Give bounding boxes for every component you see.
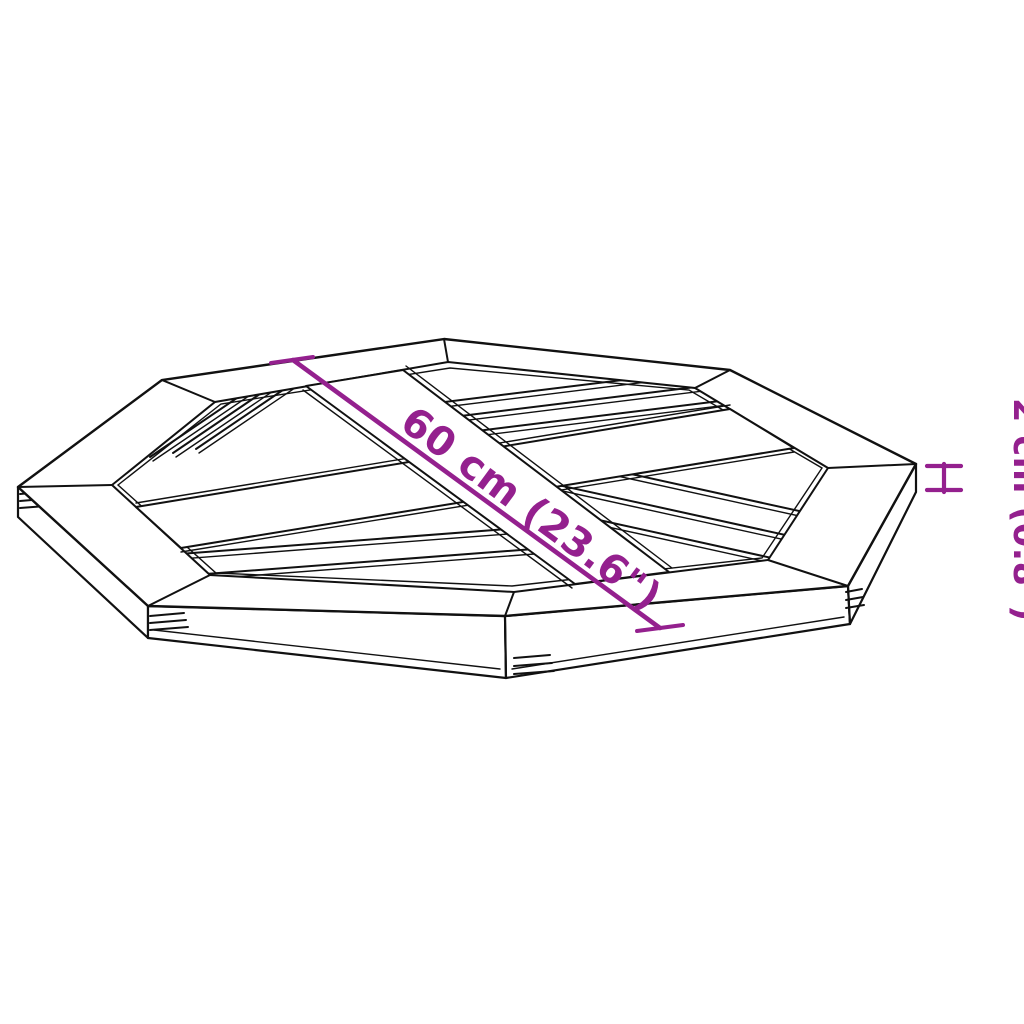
h-bracket-icon bbox=[927, 464, 961, 492]
corner-edge bbox=[505, 616, 506, 678]
table-top-illustration: 60 cm (23.6") 2 cm (0.8") bbox=[0, 0, 1024, 1024]
diagram-canvas: 60 cm (23.6") 2 cm (0.8") bbox=[0, 0, 1024, 1024]
thickness-dimension: 2 cm (0.8") bbox=[927, 398, 1024, 622]
side-face-front-left bbox=[148, 606, 506, 678]
thickness-dimension-label: 2 cm (0.8") bbox=[1005, 398, 1024, 622]
